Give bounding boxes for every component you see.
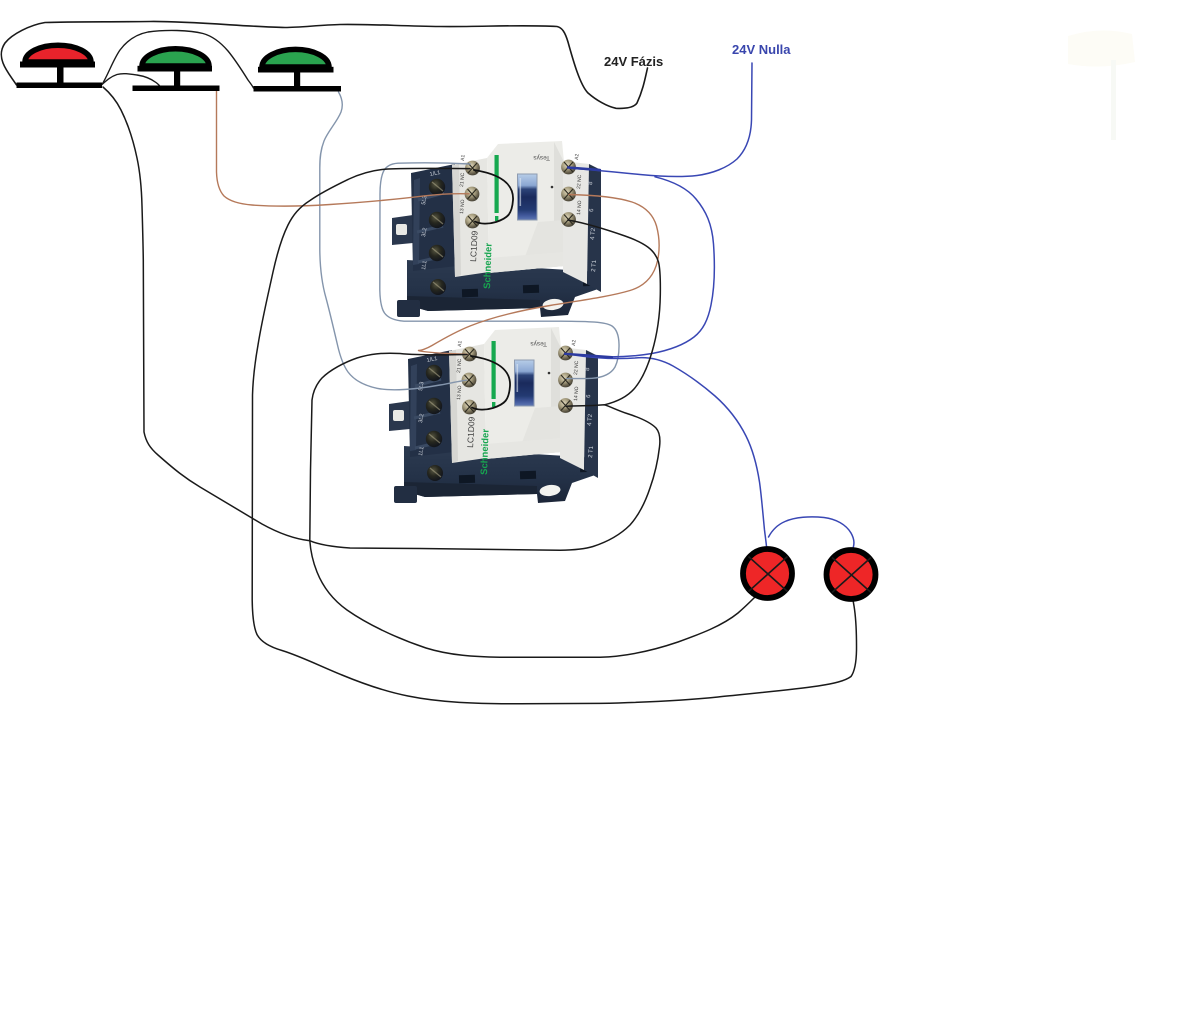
svg-text:24V Fázis: 24V Fázis <box>604 54 663 69</box>
svg-text:24V Nulla: 24V Nulla <box>732 42 791 57</box>
